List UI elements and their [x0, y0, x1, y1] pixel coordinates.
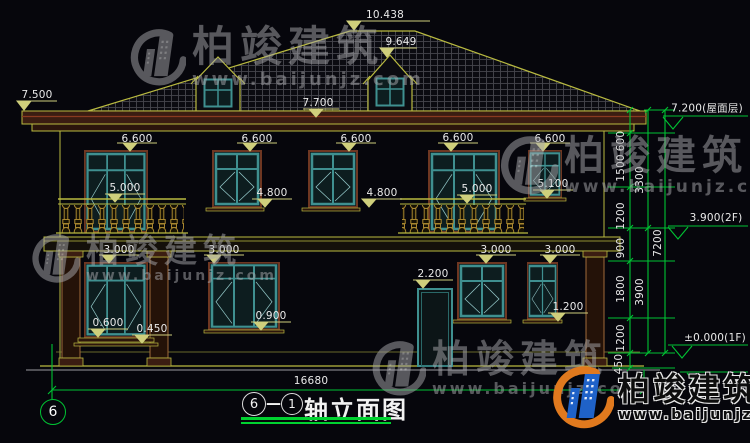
- title-separator: —: [266, 394, 281, 412]
- title-underline: [241, 417, 391, 420]
- watermark: 柏竣建筑 www.baijunjz.com: [128, 26, 424, 90]
- baijun-logo-icon: [30, 234, 80, 284]
- window-2f-3: [309, 151, 357, 207]
- baijun-logo-icon: [128, 29, 186, 87]
- watermark-url: www.baijunjz.com: [86, 268, 277, 284]
- axis-bubble-6: 6: [40, 399, 66, 425]
- baijun-logo-icon: [498, 136, 558, 196]
- watermark-brand: 柏竣建筑: [564, 136, 750, 177]
- watermark-url: www.baijunjz.com: [192, 69, 424, 90]
- eave-cornice: [22, 111, 646, 131]
- watermark-brand: 柏竣建筑: [192, 26, 424, 69]
- baijun-logo-icon: [550, 366, 614, 430]
- footer-url: www.baijunjz.com: [618, 407, 750, 423]
- watermark: 柏竣建筑 www.baijunjz.com: [30, 234, 277, 284]
- watermark: 柏竣建筑 www.baijunjz.com: [498, 136, 750, 197]
- watermark-url: www.baijunjz.com: [564, 177, 750, 197]
- window-1f-3: [458, 263, 506, 319]
- watermark-brand: 柏竣建筑: [86, 234, 277, 268]
- balcony-right: [398, 199, 528, 233]
- cad-elevation-screenshot: 10.4389.6497.7007.5006.6006.6006.6006.60…: [0, 0, 750, 443]
- title-axis-end-bubble: 1: [281, 393, 303, 415]
- brand-footer: 柏竣建筑 www.baijunjz.com: [550, 366, 750, 430]
- balcony-left: [56, 199, 188, 233]
- title-axis-start-bubble: 6: [242, 392, 266, 416]
- baijun-logo-icon: [370, 341, 426, 397]
- footer-brand: 柏竣建筑: [618, 373, 750, 407]
- window-1f-4: [528, 263, 558, 319]
- title-underline: [241, 422, 391, 424]
- axis-bubble-label: 6: [49, 404, 58, 420]
- title-axis-start: 6: [250, 397, 258, 412]
- title-axis-end: 1: [288, 397, 296, 411]
